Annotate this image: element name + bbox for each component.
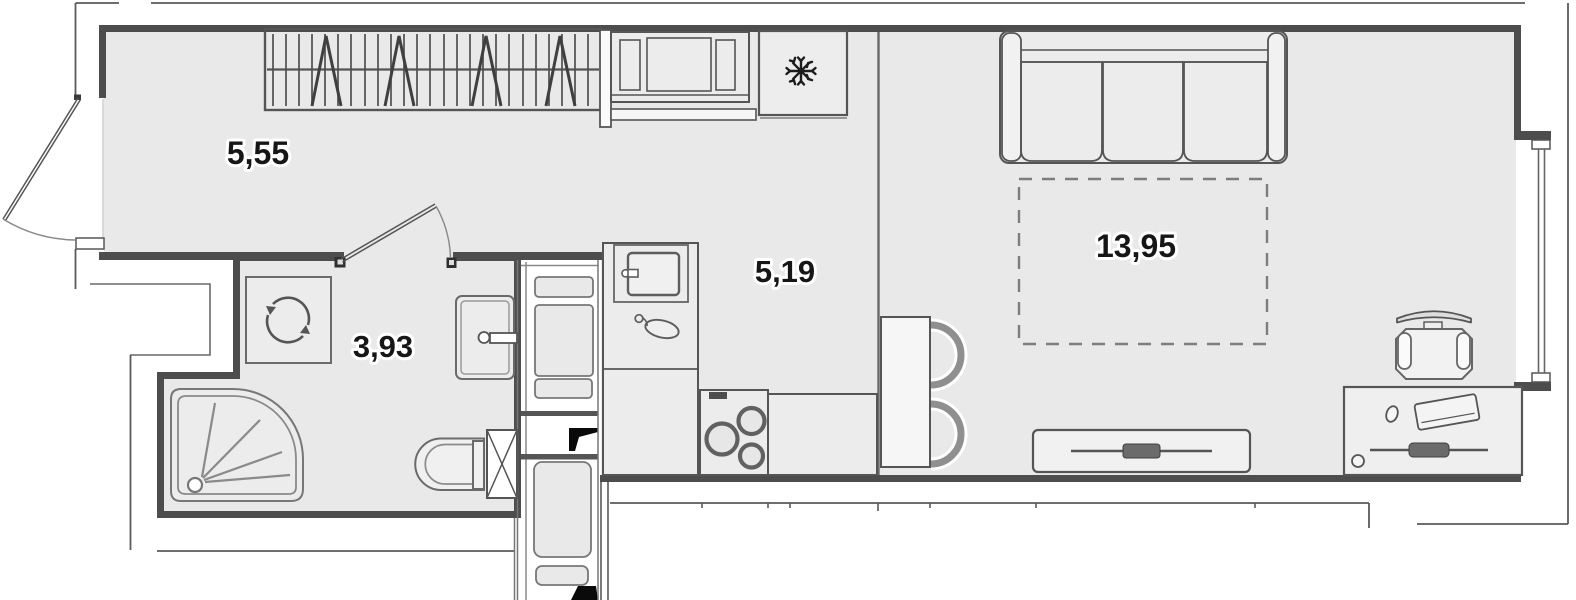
svg-text:5,19: 5,19 [755,254,815,289]
svg-text:3,93: 3,93 [353,329,413,364]
svg-text:13,95: 13,95 [1096,228,1176,264]
svg-text:5,55: 5,55 [227,135,289,171]
